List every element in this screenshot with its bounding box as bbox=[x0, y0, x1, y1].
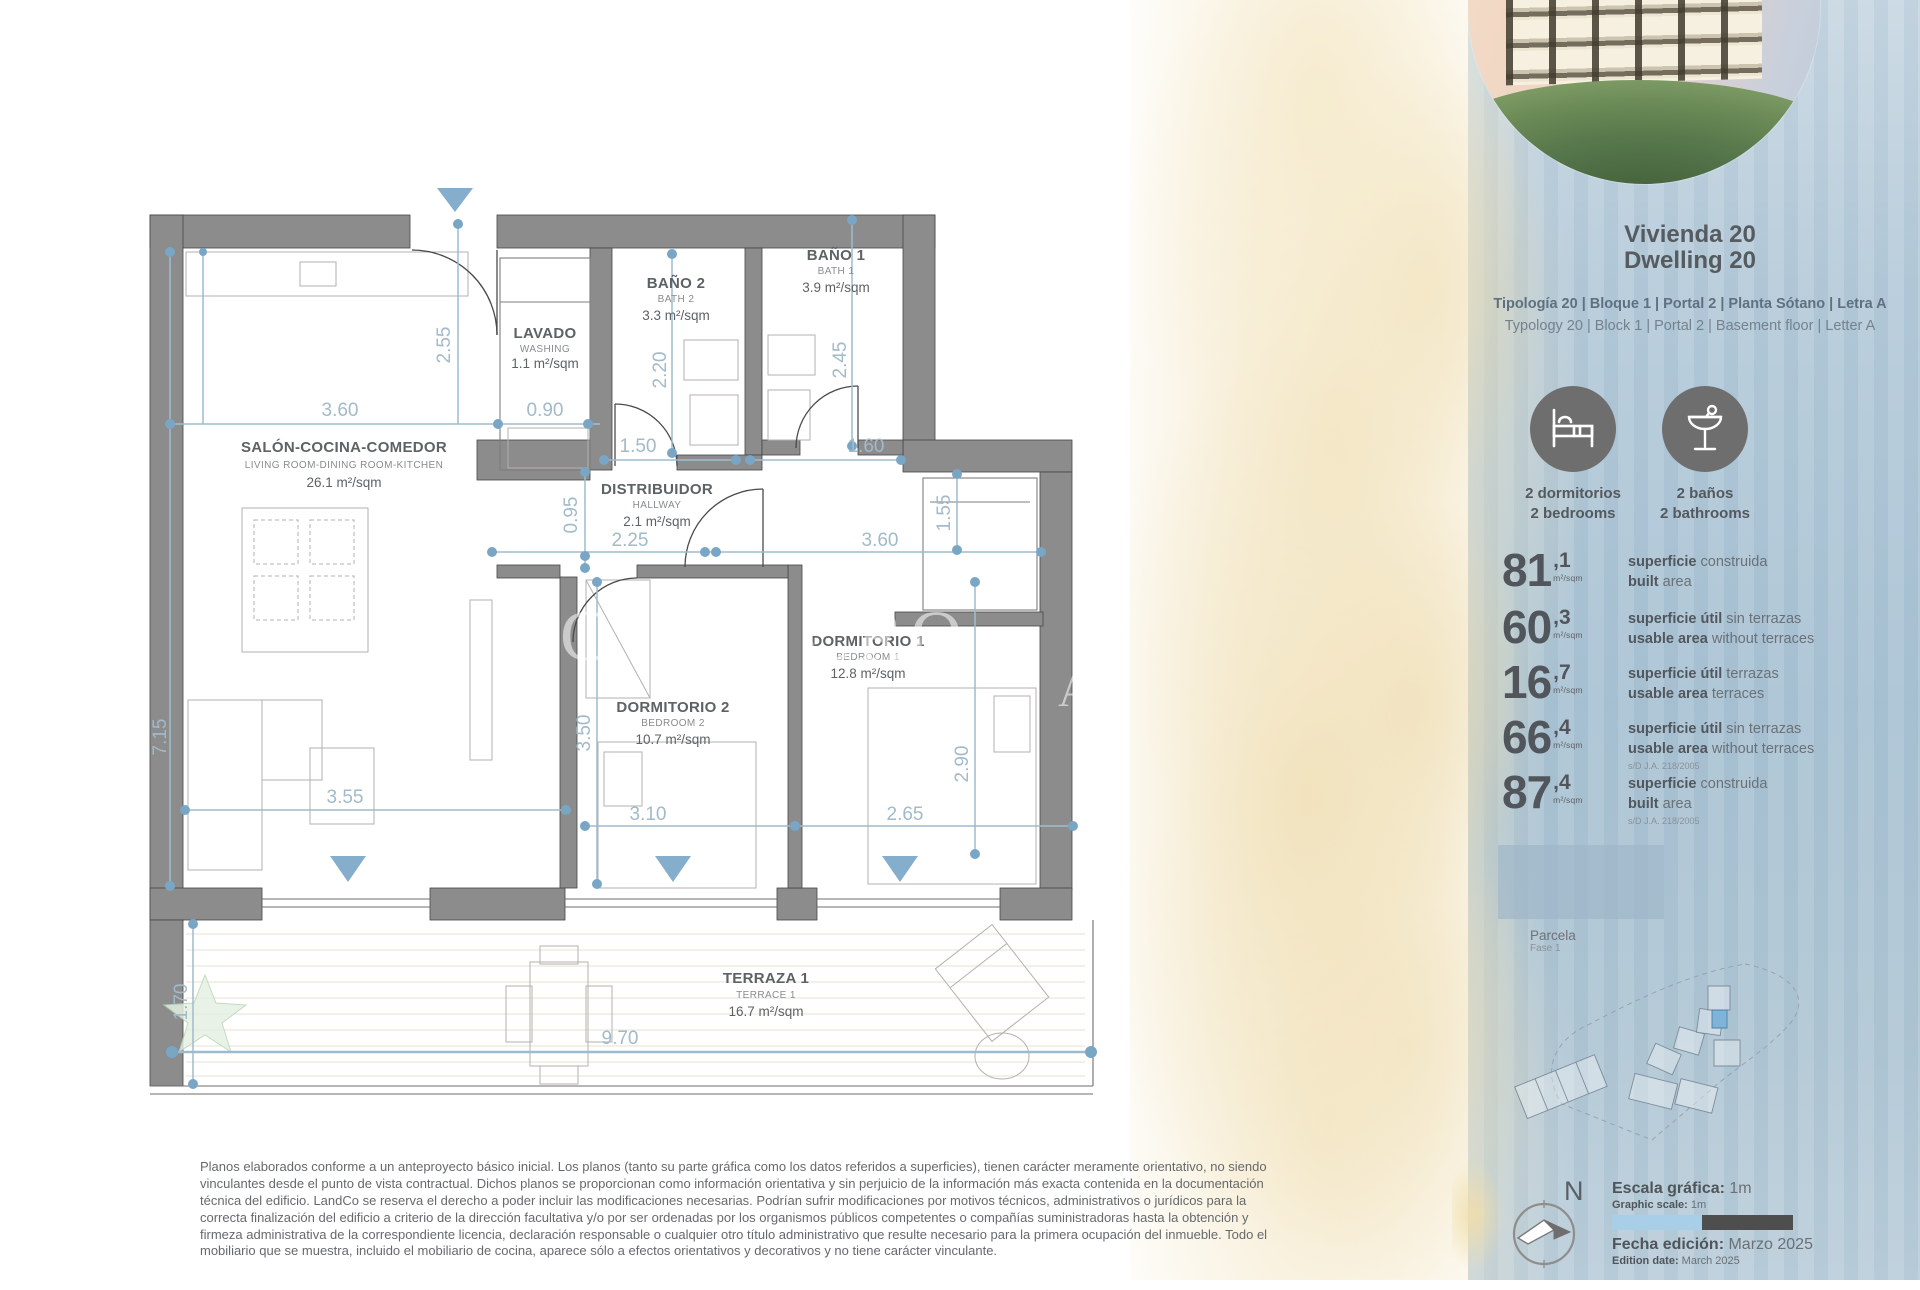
dim-1-55: 1.55 bbox=[934, 495, 955, 532]
edition-label-es: Fecha edición: bbox=[1612, 1236, 1724, 1253]
room-area-bath2: 3.3 m²/sqm bbox=[642, 308, 710, 323]
edition-block: Fecha edición: Marzo 2025 Edition date: … bbox=[1612, 1236, 1813, 1267]
window-arrow-icon bbox=[882, 856, 918, 882]
stat-unit: m²/sqm bbox=[1553, 685, 1583, 695]
dim-1-70: 1.70 bbox=[171, 984, 192, 1021]
photo-building-facade bbox=[1506, 0, 1762, 85]
feature-bedrooms-label: 2 dormitorios 2 bedrooms bbox=[1498, 484, 1648, 525]
typology-block: Tipología 20 | Bloque 1 | Portal 2 | Pla… bbox=[1452, 294, 1920, 338]
room-name-bath1: BAÑO 1 bbox=[807, 246, 865, 264]
entrance-arrow-icon bbox=[437, 188, 473, 212]
feature-bedrooms: 2 dormitorios 2 bedrooms bbox=[1498, 386, 1648, 525]
dwelling-title: Vivienda 20 Dwelling 20 bbox=[1470, 222, 1910, 275]
highlighted-unit bbox=[1712, 1010, 1727, 1028]
window-arrow-icon bbox=[330, 856, 366, 882]
title-es: Vivienda 20 bbox=[1470, 222, 1910, 248]
photo-greenery bbox=[1468, 80, 1820, 184]
window-arrow-icon bbox=[655, 856, 691, 882]
room-area-hallway: 2.1 m²/sqm bbox=[623, 514, 691, 529]
stat-value: 87 bbox=[1502, 772, 1551, 813]
room-area-bedroom2: 10.7 m²/sqm bbox=[635, 732, 710, 747]
room-name-lavado: LAVADO bbox=[514, 325, 577, 342]
stat-decimal: ,1 bbox=[1553, 550, 1583, 571]
bedroom1-door-arc bbox=[685, 489, 763, 567]
edition-label-en: Edition date: bbox=[1612, 1255, 1679, 1267]
dim-0-95: 0.95 bbox=[561, 497, 582, 534]
dim-1-60: 1.60 bbox=[848, 436, 885, 457]
room-name-bath2: BAÑO 2 bbox=[647, 274, 705, 292]
dim-2-55: 2.55 bbox=[434, 327, 455, 364]
scale-value-en: 1m bbox=[1688, 1199, 1706, 1211]
parcela-label: Parcela bbox=[1530, 928, 1576, 943]
scale-value-es: 1m bbox=[1725, 1180, 1752, 1197]
stat-value: 66 bbox=[1502, 717, 1551, 758]
watermark-text: C' L A CRO bbox=[560, 596, 968, 676]
room-area-salon: 26.1 m²/sqm bbox=[306, 475, 381, 490]
legal-disclaimer: Planos elaborados conforme a un anteproy… bbox=[200, 1159, 1278, 1260]
edition-value-es: Marzo 2025 bbox=[1724, 1236, 1813, 1253]
stat-unit: m²/sqm bbox=[1553, 795, 1583, 805]
stat-unit: m²/sqm bbox=[1553, 630, 1583, 640]
stat-value: 16 bbox=[1502, 662, 1551, 703]
building-photo bbox=[1468, 0, 1820, 184]
title-en: Dwelling 20 bbox=[1470, 248, 1910, 274]
room-name-hallway: DISTRIBUIDOR bbox=[601, 481, 713, 498]
room-sub-bedroom2: BEDROOM 2 bbox=[641, 718, 705, 729]
room-sub-lavado: WASHING bbox=[520, 344, 570, 355]
scale-label-en: Graphic scale: bbox=[1612, 1199, 1688, 1211]
dim-3-60-hall: 3.60 bbox=[862, 530, 899, 551]
dim-2-45: 2.45 bbox=[830, 342, 851, 379]
dim-3-60-top: 3.60 bbox=[322, 400, 359, 421]
scale-label-es: Escala gráfica: bbox=[1612, 1180, 1725, 1197]
scale-bar-light bbox=[1612, 1215, 1702, 1230]
stat-decimal: ,4 bbox=[1553, 717, 1583, 738]
room-sub-bath2: BATH 2 bbox=[658, 294, 695, 305]
site-buildings bbox=[1515, 986, 1740, 1119]
graphic-scale-bar bbox=[1612, 1215, 1793, 1230]
stat-note: s/D J.A. 218/2005 bbox=[1628, 760, 1814, 772]
feature-bathrooms-label: 2 baños 2 bathrooms bbox=[1630, 484, 1780, 525]
cocktail-icon bbox=[1662, 386, 1748, 472]
stat-value: 60 bbox=[1502, 607, 1551, 648]
dim-0-90: 0.90 bbox=[527, 400, 564, 421]
dim-2-90: 2.90 bbox=[952, 746, 973, 783]
dim-2-65: 2.65 bbox=[887, 804, 924, 825]
scale-block: Escala gráfica: 1m Graphic scale: 1m bbox=[1612, 1180, 1752, 1211]
room-name-bedroom2: DORMITORIO 2 bbox=[616, 699, 729, 716]
room-sub-salon: LIVING ROOM-DINING ROOM-KITCHEN bbox=[245, 460, 444, 471]
typology-line-es: Tipología 20 | Bloque 1 | Portal 2 | Pla… bbox=[1452, 294, 1920, 316]
stat-decimal: ,7 bbox=[1553, 662, 1583, 683]
room-area-bath1: 3.9 m²/sqm bbox=[802, 280, 870, 295]
typology-line-en: Typology 20 | Block 1 | Portal 2 | Basem… bbox=[1452, 316, 1920, 338]
stat-value: 81 bbox=[1502, 550, 1551, 591]
stat-built-area: 81 ,1 m²/sqm superficie construida built… bbox=[1502, 550, 1902, 606]
room-area-terrace: 16.7 m²/sqm bbox=[728, 1004, 803, 1019]
dim-3-55: 3.55 bbox=[327, 787, 364, 808]
site-plan bbox=[1500, 952, 1920, 1167]
dim-1-50: 1.50 bbox=[620, 436, 657, 457]
stat-unit: m²/sqm bbox=[1553, 573, 1583, 583]
dim-2-20: 2.20 bbox=[650, 352, 671, 389]
edition-value-en: March 2025 bbox=[1679, 1255, 1740, 1267]
stat-decimal: ,4 bbox=[1553, 772, 1583, 793]
room-sub-terrace: TERRACE 1 bbox=[736, 990, 796, 1001]
stat-usable-area: 60 ,3 m²/sqm superficie útil sin terraza… bbox=[1502, 607, 1902, 663]
room-sub-hallway: HALLWAY bbox=[633, 500, 682, 511]
room-sub-bath1: BATH 1 bbox=[818, 266, 855, 277]
stat-decimal: ,3 bbox=[1553, 607, 1583, 628]
entrance-door-arc bbox=[412, 250, 497, 335]
parcela-legend-swatch bbox=[1498, 845, 1664, 919]
room-area-lavado: 1.1 m²/sqm bbox=[511, 356, 579, 371]
room-name-salon: SALÓN-COCINA-COMEDOR bbox=[241, 438, 447, 456]
parcela-label-block: Parcela Fase 1 bbox=[1530, 928, 1576, 954]
stat-usable-area-ja: 66 ,4 m²/sqm superficie útil sin terraza… bbox=[1502, 717, 1902, 773]
stat-note: s/D J.A. 218/2005 bbox=[1628, 815, 1767, 827]
north-label: N bbox=[1564, 1176, 1584, 1207]
fixtures bbox=[150, 258, 1093, 1094]
feature-bathrooms: 2 baños 2 bathrooms bbox=[1630, 386, 1780, 525]
floor-plan: 7.15 3.60 0.90 2.55 2.20 2.45 1.50 1.60 … bbox=[140, 148, 1140, 1156]
watermark-text-2: A bbox=[1058, 665, 1091, 716]
stat-built-area-ja: 87 ,4 m²/sqm superficie construida built… bbox=[1502, 772, 1902, 828]
terrace-deck bbox=[186, 934, 1085, 1076]
bed-icon bbox=[1530, 386, 1616, 472]
dim-7-15: 7.15 bbox=[150, 719, 171, 756]
dim-9-70: 9.70 bbox=[602, 1028, 639, 1049]
stat-terrace-area: 16 ,7 m²/sqm superficie útil terrazas us… bbox=[1502, 662, 1902, 718]
stat-unit: m²/sqm bbox=[1553, 740, 1583, 750]
dim-3-10: 3.10 bbox=[630, 804, 667, 825]
dim-3-50: 3.50 bbox=[574, 715, 595, 752]
dim-2-25: 2.25 bbox=[612, 530, 649, 551]
scale-bar-dark bbox=[1702, 1215, 1793, 1230]
room-name-terrace: TERRAZA 1 bbox=[723, 970, 809, 987]
